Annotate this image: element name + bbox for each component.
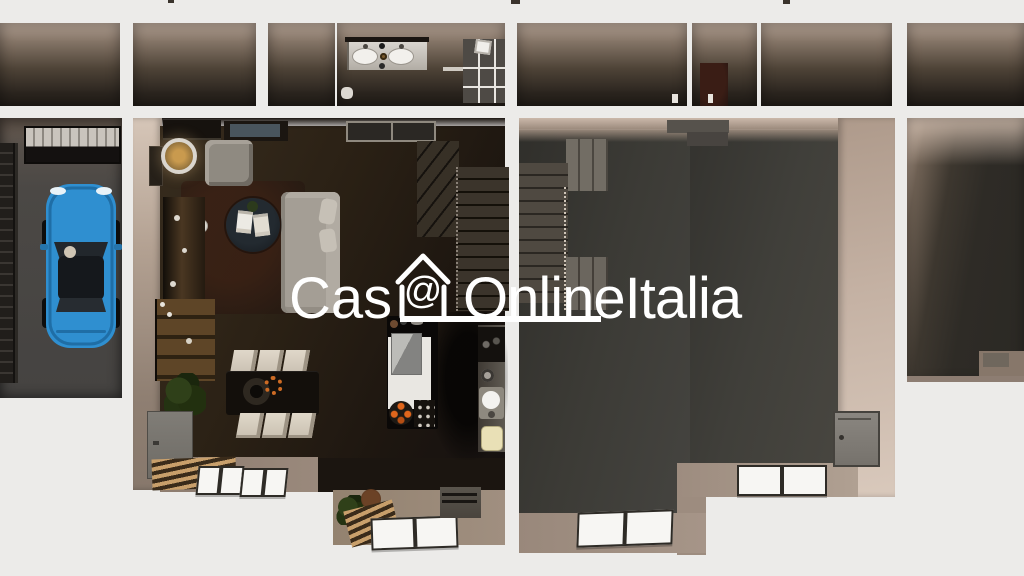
watermark-overlay: Cas @ OnlineItalia (0, 0, 1024, 576)
watermark-at-symbol: @ (404, 270, 443, 312)
watermark-underline (400, 316, 601, 322)
house-at-logo-icon: @ (395, 251, 451, 321)
watermark-text-prefix: Cas (289, 270, 392, 328)
floorplan-render: Cas @ OnlineItalia (0, 0, 1024, 576)
